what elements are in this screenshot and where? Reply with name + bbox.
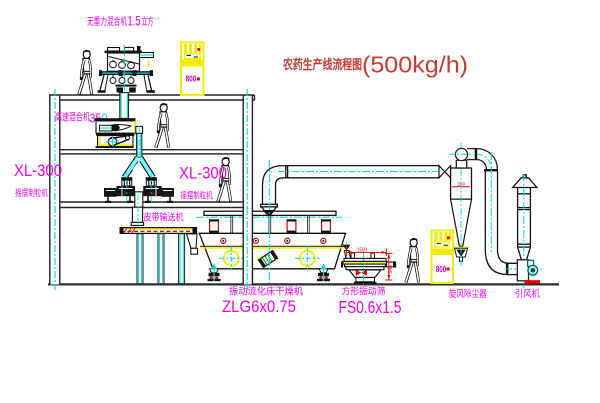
svg-text:800: 800 (186, 74, 197, 84)
svg-text:545: 545 (388, 265, 394, 274)
svg-text:立方: 立方 (142, 15, 154, 28)
svg-text:皮带输送机: 皮带输送机 (144, 212, 184, 224)
svg-text:摇摆制粒机: 摇摆制粒机 (15, 187, 48, 198)
svg-text:无重力混合机: 无重力混合机 (87, 15, 127, 28)
svg-text:方形振动筛: 方形振动筛 (342, 286, 386, 298)
svg-text:ZLG6x0.75: ZLG6x0.75 (222, 297, 296, 316)
svg-text:摇摆制粒机: 摇摆制粒机 (181, 190, 213, 201)
svg-text:农药生产线流程图: 农药生产线流程图 (282, 57, 362, 72)
svg-text:(500kg/h): (500kg/h) (362, 52, 468, 78)
svg-text:旋风除尘器: 旋风除尘器 (449, 288, 487, 300)
svg-text:引风机: 引风机 (515, 288, 540, 300)
svg-text:振动流化床干燥机: 振动流化床干燥机 (229, 286, 303, 298)
svg-text:1500: 1500 (357, 247, 367, 253)
svg-text:1.5: 1.5 (128, 14, 141, 29)
svg-text:800: 800 (436, 264, 447, 274)
svg-text:高速混合机: 高速混合机 (55, 111, 90, 124)
svg-text:FS0.6x1.5: FS0.6x1.5 (339, 297, 402, 317)
svg-text:XL-300: XL-300 (179, 165, 227, 183)
svg-text:XL-300: XL-300 (14, 162, 62, 180)
